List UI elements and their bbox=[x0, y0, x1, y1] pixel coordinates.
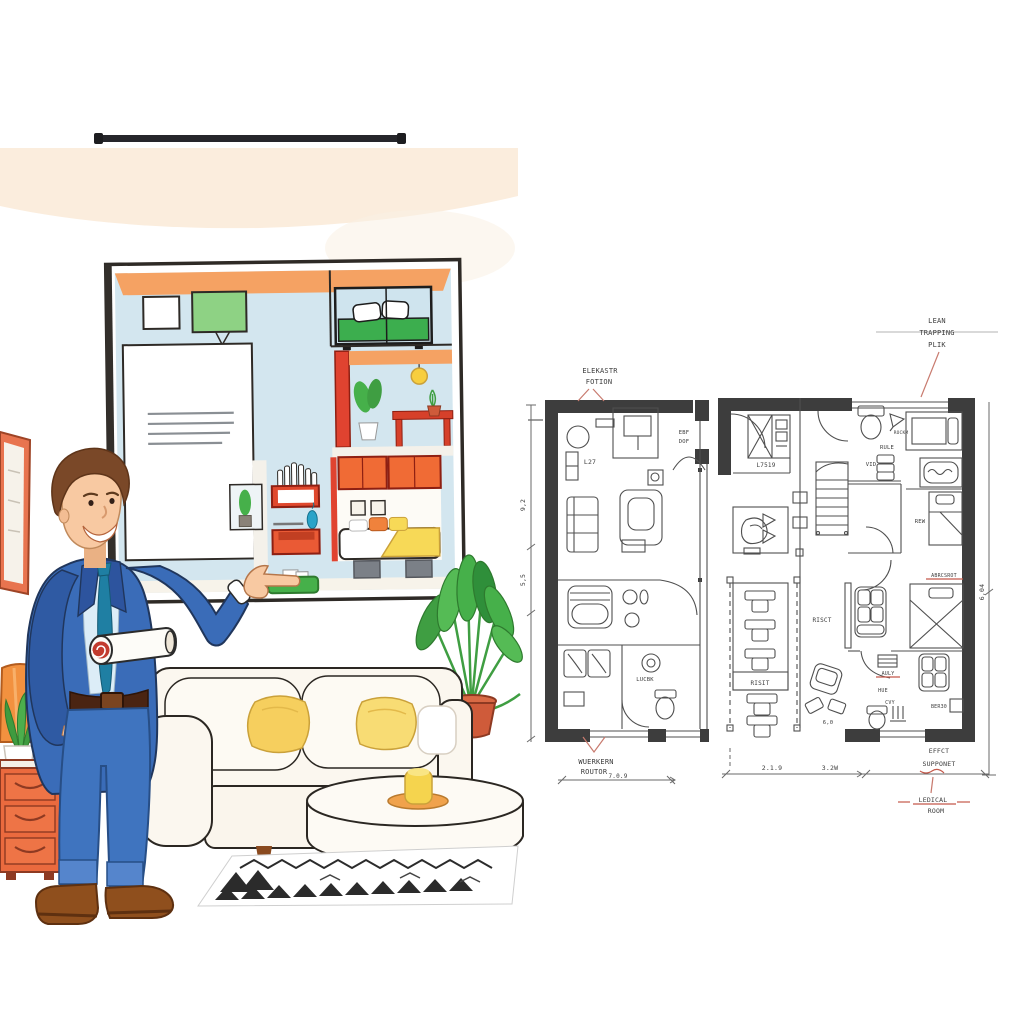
terrace-dashed bbox=[730, 583, 797, 728]
label-rew: REW bbox=[915, 519, 926, 525]
poster-drawer-unit bbox=[272, 530, 319, 555]
bed-upper-right bbox=[906, 412, 962, 450]
round-table bbox=[567, 426, 589, 448]
sofa-left-unit bbox=[567, 497, 598, 552]
callout-lean-line1: LEAN bbox=[928, 317, 946, 325]
bathtub bbox=[920, 458, 962, 487]
callout-workroom-line1: WUERKERN bbox=[578, 758, 613, 766]
label-ber30: BER30 bbox=[931, 704, 947, 710]
label-bath: LUCBK bbox=[636, 677, 654, 683]
callout-medical-line2: ROOM bbox=[928, 807, 944, 815]
label-risct: RISCT bbox=[812, 617, 831, 624]
hanging-lamp bbox=[411, 368, 427, 384]
staircase bbox=[816, 462, 848, 535]
plan-left-unit-walls bbox=[545, 400, 709, 742]
belt-buckle bbox=[101, 693, 123, 709]
bed-left-unit bbox=[613, 408, 658, 458]
candle bbox=[405, 768, 432, 804]
sofa-lower-right bbox=[919, 654, 949, 691]
callout-elevator-line1: ELEKASTR bbox=[582, 367, 618, 375]
label-vid: VID bbox=[866, 462, 877, 468]
bath-fixtures bbox=[568, 586, 648, 628]
label-seat-dim: 6,0 bbox=[823, 720, 834, 726]
floor-plan: ELEKASTR FOTION LEAN TRAPPING PLIK L27 E… bbox=[519, 317, 998, 815]
callout-medical-line1: LEDICAL bbox=[919, 796, 948, 804]
label-risit: RISIT bbox=[750, 680, 769, 687]
yellow-pillow-right bbox=[356, 697, 416, 749]
dim-bottom-right-a: 2.1.9 bbox=[762, 764, 783, 772]
label-room-living: L27 bbox=[584, 458, 596, 466]
rotated-armchair bbox=[805, 662, 847, 714]
seating-column bbox=[733, 583, 788, 737]
label-auly: AULY bbox=[882, 671, 895, 677]
wardrobe bbox=[748, 415, 790, 458]
ear bbox=[59, 509, 69, 523]
illustrated-scene: ELEKASTR FOTION LEAN TRAPPING PLIK L27 E… bbox=[0, 0, 1024, 1024]
callout-elevator-line2: FOTION bbox=[586, 378, 613, 386]
yellow-pillow-left bbox=[248, 696, 310, 753]
label-suite: L7519 bbox=[756, 462, 775, 469]
dim-bottom-right-b: 3.2W bbox=[822, 764, 838, 772]
label-cvy: CVY bbox=[885, 700, 895, 706]
poster-bedroom bbox=[330, 456, 442, 579]
toilet-lower bbox=[867, 706, 887, 729]
label-entry-door-2: DOF bbox=[679, 439, 690, 445]
closet-room bbox=[564, 650, 610, 706]
toilet-room bbox=[622, 654, 676, 727]
dim-right-side: 6,04 bbox=[978, 584, 986, 600]
white-pillow bbox=[418, 706, 456, 754]
armchair-left-unit bbox=[620, 490, 662, 552]
callout-lean-line2: TRAPPING bbox=[919, 329, 954, 337]
toilet-upper bbox=[858, 406, 884, 439]
radiator bbox=[890, 706, 906, 721]
triangle-marker bbox=[890, 414, 904, 431]
drawer-stack bbox=[877, 455, 894, 480]
label-rockm: ROCKM bbox=[894, 430, 909, 436]
scene-svg: ELEKASTR FOTION LEAN TRAPPING PLIK L27 E… bbox=[0, 0, 1024, 1024]
callout-effect-line2: SUPPONET bbox=[923, 760, 956, 768]
living-room-illustration bbox=[0, 133, 528, 924]
label-entry-door-1: EBF bbox=[679, 430, 690, 436]
dim-left-upper: 9,2 bbox=[519, 499, 527, 511]
dim-left-lower: 5,5 bbox=[519, 574, 527, 586]
bed-lower-right bbox=[910, 584, 963, 648]
poster-picture-frame bbox=[143, 296, 179, 328]
callout-effect-line1: EFFCT bbox=[929, 747, 950, 755]
wall-picture bbox=[0, 432, 30, 594]
label-abrcsrot: ABRCSROT bbox=[931, 573, 957, 579]
poster-bed-section bbox=[335, 287, 432, 350]
sofa-lower-left bbox=[855, 587, 886, 637]
label-rule: RULE bbox=[880, 445, 894, 451]
rug bbox=[198, 846, 518, 906]
bed-mid-right bbox=[929, 492, 962, 545]
callout-lean-line3: PLIK bbox=[928, 341, 946, 349]
poster-display-case bbox=[230, 484, 263, 529]
interior-cutaway-poster bbox=[105, 260, 465, 603]
label-hue: HUE bbox=[878, 688, 888, 694]
callout-workroom-line2: ROUTOR bbox=[581, 768, 608, 776]
dim-bottom-left-unit: 7.0.9 bbox=[608, 773, 627, 780]
curtain-rail bbox=[94, 133, 406, 144]
desk-room bbox=[733, 507, 788, 554]
shoe-left bbox=[36, 884, 98, 924]
callout-leaders bbox=[578, 352, 970, 804]
pants-cuff-right bbox=[107, 862, 143, 886]
pants-cuff-left bbox=[59, 860, 97, 884]
